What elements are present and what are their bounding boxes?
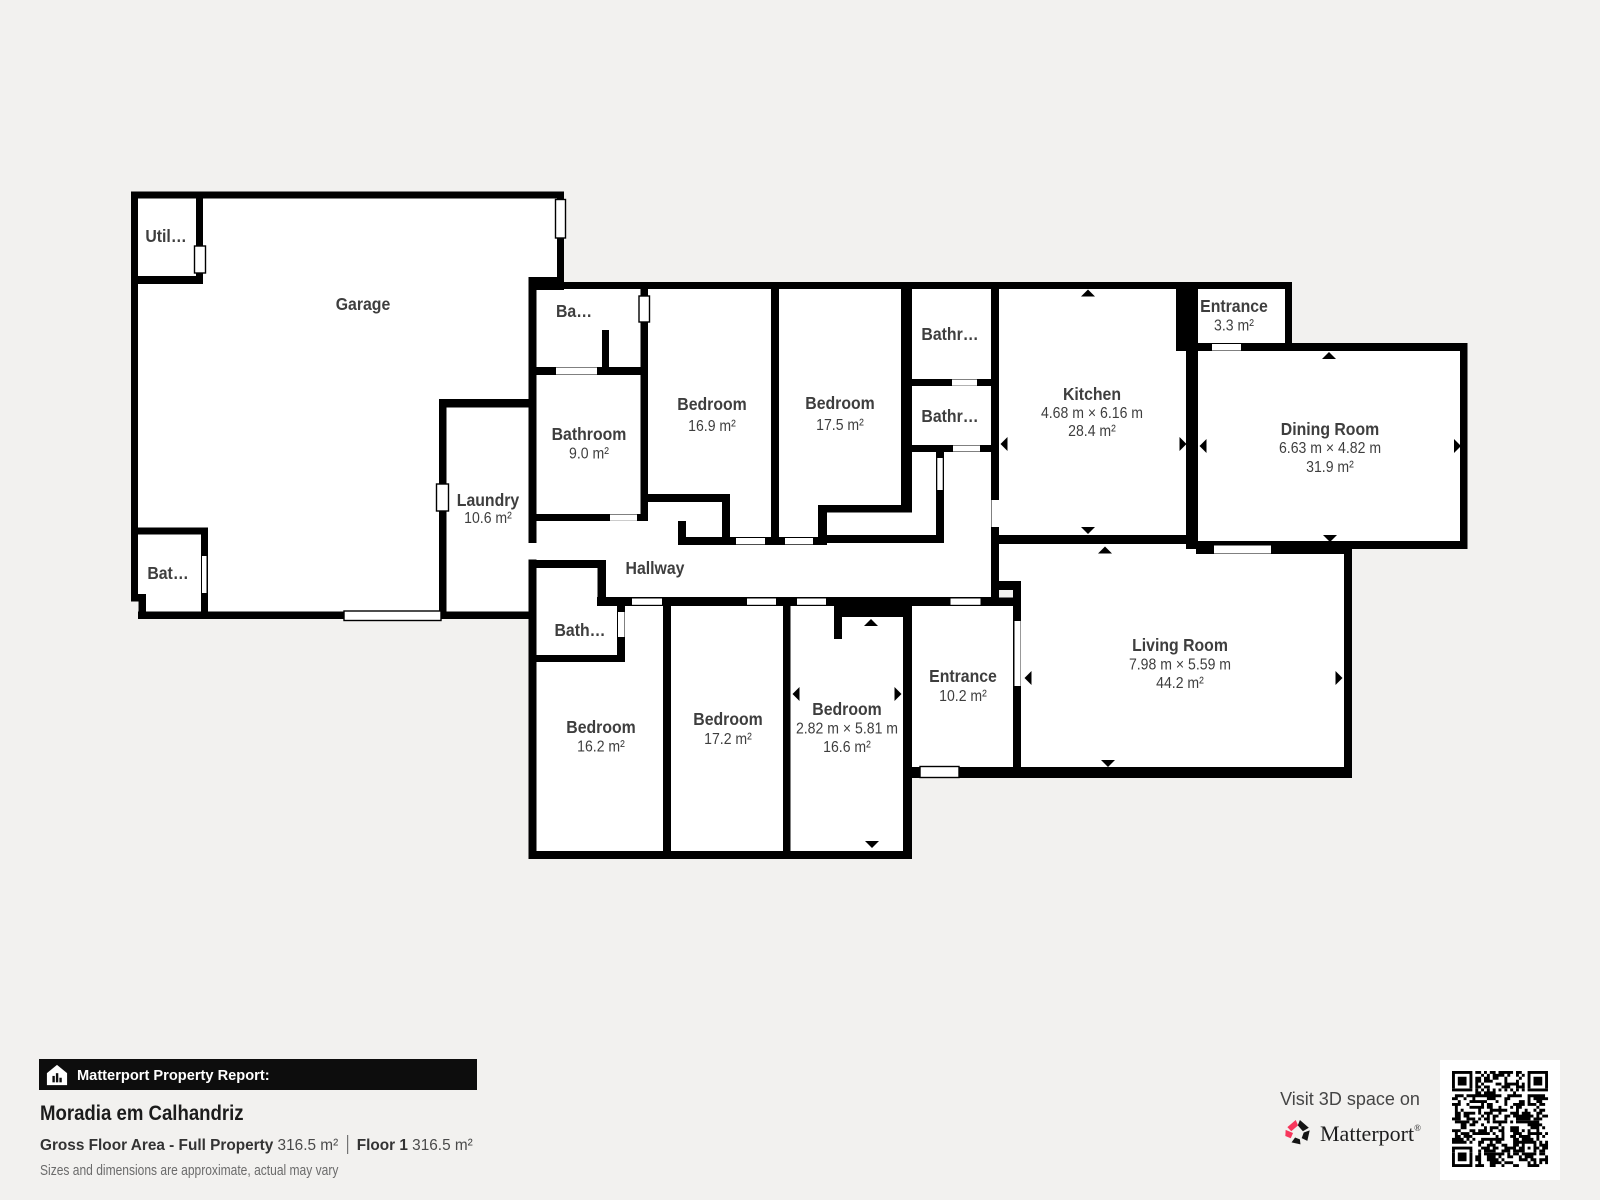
svg-text:Garage: Garage bbox=[336, 294, 391, 314]
svg-text:Kitchen: Kitchen bbox=[1063, 384, 1121, 404]
svg-text:6.63 m × 4.82 m: 6.63 m × 4.82 m bbox=[1279, 439, 1381, 457]
svg-text:28.4 m²: 28.4 m² bbox=[1068, 422, 1116, 440]
svg-text:Util…: Util… bbox=[145, 226, 186, 246]
svg-text:2.82 m × 5.81 m: 2.82 m × 5.81 m bbox=[796, 719, 898, 737]
svg-text:16.2 m²: 16.2 m² bbox=[577, 737, 625, 755]
svg-text:Bathroom: Bathroom bbox=[552, 424, 627, 444]
svg-text:Dining Room: Dining Room bbox=[1281, 419, 1379, 439]
svg-text:Entrance: Entrance bbox=[1200, 296, 1268, 316]
svg-text:Ba…: Ba… bbox=[556, 301, 592, 321]
svg-text:Bath…: Bath… bbox=[555, 620, 606, 640]
svg-text:Bedroom: Bedroom bbox=[812, 699, 881, 719]
svg-text:17.5 m²: 17.5 m² bbox=[816, 416, 864, 434]
svg-text:16.6 m²: 16.6 m² bbox=[823, 738, 871, 756]
svg-text:Entrance: Entrance bbox=[929, 666, 997, 686]
svg-text:Bat…: Bat… bbox=[147, 563, 188, 583]
svg-text:31.9 m²: 31.9 m² bbox=[1306, 458, 1354, 476]
svg-text:10.2 m²: 10.2 m² bbox=[939, 687, 987, 705]
svg-text:17.2 m²: 17.2 m² bbox=[704, 730, 752, 748]
svg-text:Bathr…: Bathr… bbox=[921, 406, 978, 426]
svg-text:Bathr…: Bathr… bbox=[921, 324, 978, 344]
svg-text:Bedroom: Bedroom bbox=[805, 393, 874, 413]
svg-text:Bedroom: Bedroom bbox=[693, 709, 762, 729]
svg-text:4.68 m × 6.16 m: 4.68 m × 6.16 m bbox=[1041, 404, 1143, 422]
svg-text:Bedroom: Bedroom bbox=[677, 394, 746, 414]
svg-text:Laundry: Laundry bbox=[457, 490, 520, 510]
svg-text:7.98 m × 5.59 m: 7.98 m × 5.59 m bbox=[1129, 655, 1231, 673]
svg-text:Living Room: Living Room bbox=[1132, 635, 1228, 655]
svg-text:Hallway: Hallway bbox=[626, 558, 685, 578]
svg-text:9.0 m²: 9.0 m² bbox=[569, 444, 609, 462]
svg-text:44.2 m²: 44.2 m² bbox=[1156, 674, 1204, 692]
svg-text:3.3 m²: 3.3 m² bbox=[1214, 316, 1254, 334]
svg-text:10.6 m²: 10.6 m² bbox=[464, 509, 512, 527]
svg-text:Bedroom: Bedroom bbox=[566, 717, 635, 737]
svg-text:16.9 m²: 16.9 m² bbox=[688, 417, 736, 435]
